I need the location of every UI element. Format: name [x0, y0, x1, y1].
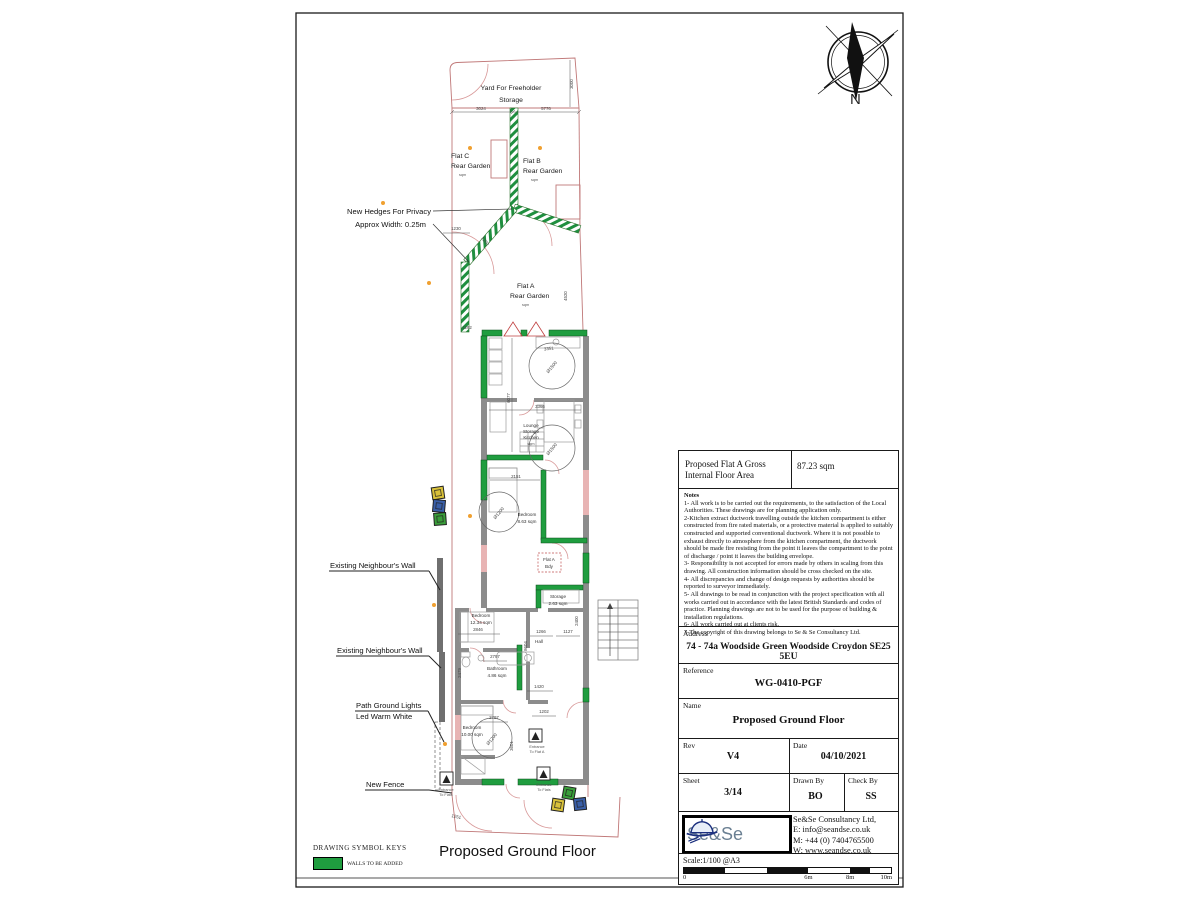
walls-to-be-added-label: WALLS TO BE ADDED — [347, 861, 403, 867]
drawing-page: N — [0, 0, 1200, 900]
drawing-symbol-keys: DRAWING SYMBOL KEYS WALLS TO BE ADDED — [313, 844, 406, 852]
notes-title: Notes — [684, 492, 894, 500]
flat-b-label-line2: Rear Garden — [523, 168, 563, 175]
area-value: 87.23 sqm — [797, 461, 835, 471]
entrance-flats1-line2: To Flats — [537, 788, 550, 792]
scale-tick-10m: 10m — [880, 874, 892, 881]
walls-to-be-added-swatch — [313, 857, 343, 870]
scale-tick-6m: 6m — [804, 874, 812, 881]
check-by-label: Check By — [848, 776, 878, 785]
dim-1230: 1230 — [451, 226, 461, 231]
hard-hat-icon — [685, 818, 719, 844]
dim-1266: 1266 — [536, 629, 546, 634]
dim-5776: 5776 — [541, 106, 551, 111]
entrance-flat-a-line2: To Flat A — [530, 750, 545, 754]
address-value: 74 - 74a Woodside Green Woodside Croydon… — [679, 642, 898, 662]
dim-1292: 1292 — [462, 325, 472, 330]
dim-2151: 2151 — [511, 474, 521, 479]
dim-3366: 3366 — [535, 404, 545, 409]
flat-c-label-line1: Flat C — [451, 153, 469, 160]
lounge-label-area: sqm — [527, 442, 534, 446]
lounge-label-line2: Storage — [523, 429, 540, 434]
yard-label-line2: Storage — [499, 97, 523, 104]
note-2: 2-Kitchen extract ductwork travelling ou… — [684, 515, 894, 561]
dim-2797b: 2797 — [489, 715, 499, 720]
scale-ticks: 0 6m 8m 10m — [683, 874, 892, 884]
flat-b-area: sqm — [531, 178, 538, 182]
dim-4520: 4520 — [563, 291, 568, 301]
company-info: Se&Se Consultancy Ltd, E: info@seandse.c… — [793, 815, 895, 856]
reference-label: Reference — [683, 666, 713, 675]
dim-2846: 2846 — [473, 627, 483, 632]
flat-b-label-line1: Flat B — [523, 158, 541, 165]
flat-a-area: sqm — [522, 303, 529, 307]
flat-c-label-line2: Rear Garden — [451, 163, 491, 170]
hedge-note-line1: New Hedges For Privacy — [347, 207, 431, 216]
existing-wall-label-1: Existing Neighbour's Wall — [330, 561, 416, 570]
dim-3024: 3024 — [476, 106, 486, 111]
address-row: Address 74 - 74a Woodside Green Woodside… — [679, 626, 898, 663]
rev-value: V4 — [679, 751, 787, 762]
bedroom1-label: Bedroom — [518, 512, 537, 517]
sheet-value: 3/14 — [679, 787, 787, 798]
legend-title: DRAWING SYMBOL KEYS — [313, 844, 406, 852]
storage-label: Storage — [550, 594, 567, 599]
scale-label: Scale:1/100 @A3 — [683, 856, 740, 865]
hedge-note-line2: Approx Width: 0.25m — [355, 220, 426, 229]
yard-label-line1: Yard For Freeholder — [481, 85, 542, 92]
note-4: 4- All discrepancies and change of desig… — [684, 576, 894, 591]
storage-area: 2.63 sqm — [549, 601, 568, 606]
company-phone: M: +44 (0) 7404765500 — [793, 836, 895, 846]
drawn-by-value: BO — [789, 791, 842, 802]
entrance-flat-a-line1: Entrance — [529, 745, 544, 749]
company-email: E: info@seandse.co.uk — [793, 825, 895, 835]
dim-1420: 1420 — [534, 684, 544, 689]
dim-8604: 8604 — [523, 641, 528, 651]
dim-1127: 1127 — [563, 629, 573, 634]
area-divider — [791, 451, 792, 488]
scale-row: Scale:1/100 @A3 0 6m 8m 10m — [679, 853, 898, 886]
sheet-drawn-check-row: Sheet 3/14 Drawn By BO Check By SS — [679, 773, 898, 811]
title-block: Proposed Flat A Gross Internal Floor Are… — [678, 450, 899, 885]
area-label: Proposed Flat A Gross Internal Floor Are… — [685, 459, 785, 482]
bedroom3-label: Bedroom — [463, 725, 482, 730]
sheet-label: Sheet — [683, 776, 700, 785]
company-name: Se&Se Consultancy Ltd, — [793, 815, 895, 825]
flat-a-label-line1: Flat A — [517, 283, 535, 290]
reference-value: WG-0410-PGF — [679, 678, 898, 689]
scale-tick-8m: 8m — [846, 874, 854, 881]
sheet-title: Proposed Ground Floor — [425, 843, 610, 860]
scale-bar — [683, 867, 892, 874]
flat-a-bdy-line1: Flat A — [543, 557, 556, 562]
note-3: 3- Responsibility is not accepted for er… — [684, 560, 894, 575]
bathroom-label: Bathroom — [487, 666, 507, 671]
notes-row: Notes 1- All work is to be carried out t… — [679, 488, 898, 626]
north-label: N — [850, 91, 861, 108]
notes-block: Notes 1- All work is to be carried out t… — [684, 492, 894, 637]
lounge-label-line3: Kitchen — [523, 435, 539, 440]
existing-wall-label-2: Existing Neighbour's Wall — [337, 646, 423, 655]
check-by-value: SS — [844, 791, 898, 802]
logo-row: Se&Se Se&Se Consultancy Ltd, E: info@sea… — [679, 811, 898, 853]
floor-plan-canvas: N — [0, 0, 1200, 900]
dim-6077: 6077 — [506, 393, 511, 403]
dim-2400: 2400 — [574, 616, 579, 626]
bedroom1-area: 8.63 sqm — [518, 519, 537, 524]
flat-a-bdy-line2: Bdy — [545, 564, 554, 569]
date-value: 04/10/2021 — [789, 751, 898, 762]
note-5: 5- All drawings to be read in conjunctio… — [684, 591, 894, 621]
stairs — [598, 600, 638, 660]
date-label: Date — [793, 741, 807, 750]
dim-3000: 3000 — [569, 79, 574, 89]
dim-1202: 1202 — [539, 709, 549, 714]
bedroom2-area: 12.34 sqm — [470, 620, 492, 625]
lounge-label-line1: Lounge — [523, 423, 539, 428]
company-logo: Se&Se — [682, 815, 792, 854]
note-1: 1- All work is to be carried out the req… — [684, 500, 894, 515]
area-row: Proposed Flat A Gross Internal Floor Are… — [679, 451, 898, 488]
hall-label: Hall — [535, 639, 543, 644]
drawn-by-label: Drawn By — [793, 776, 824, 785]
rev-label: Rev — [683, 741, 695, 750]
address-label: Address — [683, 629, 708, 638]
bedroom2-label: Bedroom — [472, 613, 491, 618]
dim-3601: 3601 — [509, 741, 514, 751]
flat-a-label-line2: Rear Garden — [510, 293, 550, 300]
name-row: Name Proposed Ground Floor — [679, 698, 898, 738]
scale-tick-0: 0 — [683, 874, 686, 881]
dim-2797a: 2797 — [490, 654, 500, 659]
dim-2479: 2479 — [457, 668, 462, 678]
path-lights-label-line1: Path Ground Lights — [356, 701, 422, 710]
bedroom3-area: 10.00 sqm — [461, 732, 483, 737]
name-label: Name — [683, 701, 701, 710]
rev-date-row: Rev V4 Date 04/10/2021 — [679, 738, 898, 773]
reference-row: Reference WG-0410-PGF — [679, 663, 898, 698]
new-fence-label: New Fence — [366, 780, 404, 789]
name-value: Proposed Ground Floor — [679, 714, 898, 726]
bathroom-area: 4.86 sqm — [488, 673, 507, 678]
entrance-flats2-line2: To Flats — [439, 793, 452, 797]
entrance-flats1-line1: Entrance — [536, 783, 551, 787]
flat-c-area: sqm — [459, 173, 466, 177]
path-lights-label-line2: Led Warm White — [356, 712, 412, 721]
